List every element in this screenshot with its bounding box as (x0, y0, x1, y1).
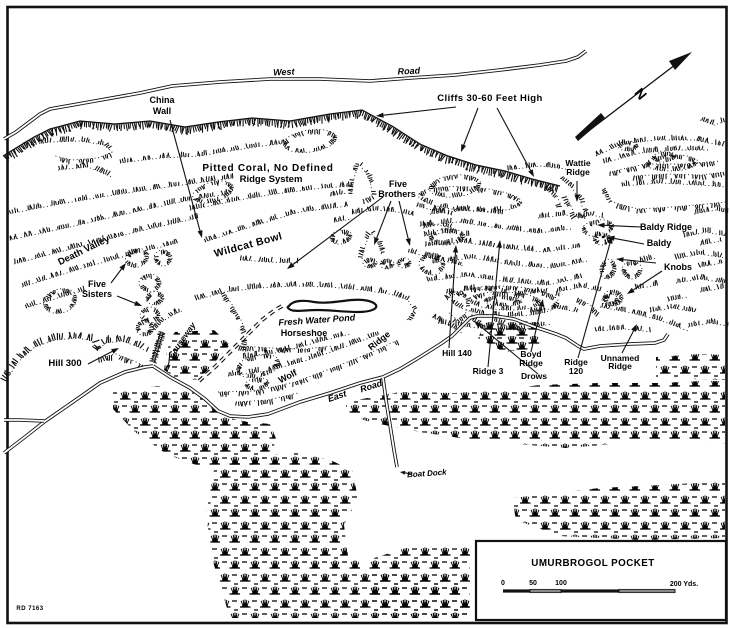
svg-text:Cliffs 30-60 Feet High: Cliffs 30-60 Feet High (437, 93, 542, 104)
svg-text:Sisters: Sisters (82, 289, 112, 299)
svg-text:Hill 300: Hill 300 (48, 358, 81, 369)
svg-text:UMURBROGOL POCKET: UMURBROGOL POCKET (531, 558, 654, 569)
svg-text:Five: Five (88, 279, 106, 289)
svg-text:Pitted Coral, No Defined: Pitted Coral, No Defined (202, 163, 333, 174)
svg-text:Horseshoe: Horseshoe (281, 328, 328, 338)
svg-text:Knobs: Knobs (664, 262, 692, 272)
svg-text:200 Yds.: 200 Yds. (670, 581, 698, 588)
svg-text:Drows: Drows (521, 371, 547, 381)
svg-text:Ridge: Ridge (519, 358, 543, 368)
svg-text:West: West (273, 66, 296, 77)
svg-text:50: 50 (529, 580, 537, 587)
svg-text:120: 120 (569, 366, 583, 376)
svg-text:Five: Five (389, 179, 407, 189)
svg-text:100: 100 (555, 580, 567, 587)
svg-text:RD 7163: RD 7163 (16, 606, 43, 612)
svg-text:China: China (149, 95, 175, 105)
svg-text:0: 0 (501, 580, 505, 587)
svg-text:Hill 140: Hill 140 (442, 348, 472, 358)
svg-text:Ridge: Ridge (608, 361, 632, 371)
svg-text:Baldy: Baldy (647, 238, 672, 248)
svg-text:Wall: Wall (153, 106, 171, 116)
svg-text:Road: Road (397, 65, 420, 76)
svg-text:Ridge System: Ridge System (240, 174, 303, 185)
svg-text:Ridge: Ridge (566, 167, 590, 177)
svg-text:Ridge 3: Ridge 3 (473, 366, 504, 376)
svg-text:Baldy Ridge: Baldy Ridge (640, 222, 692, 232)
svg-text:Brothers: Brothers (378, 189, 416, 199)
